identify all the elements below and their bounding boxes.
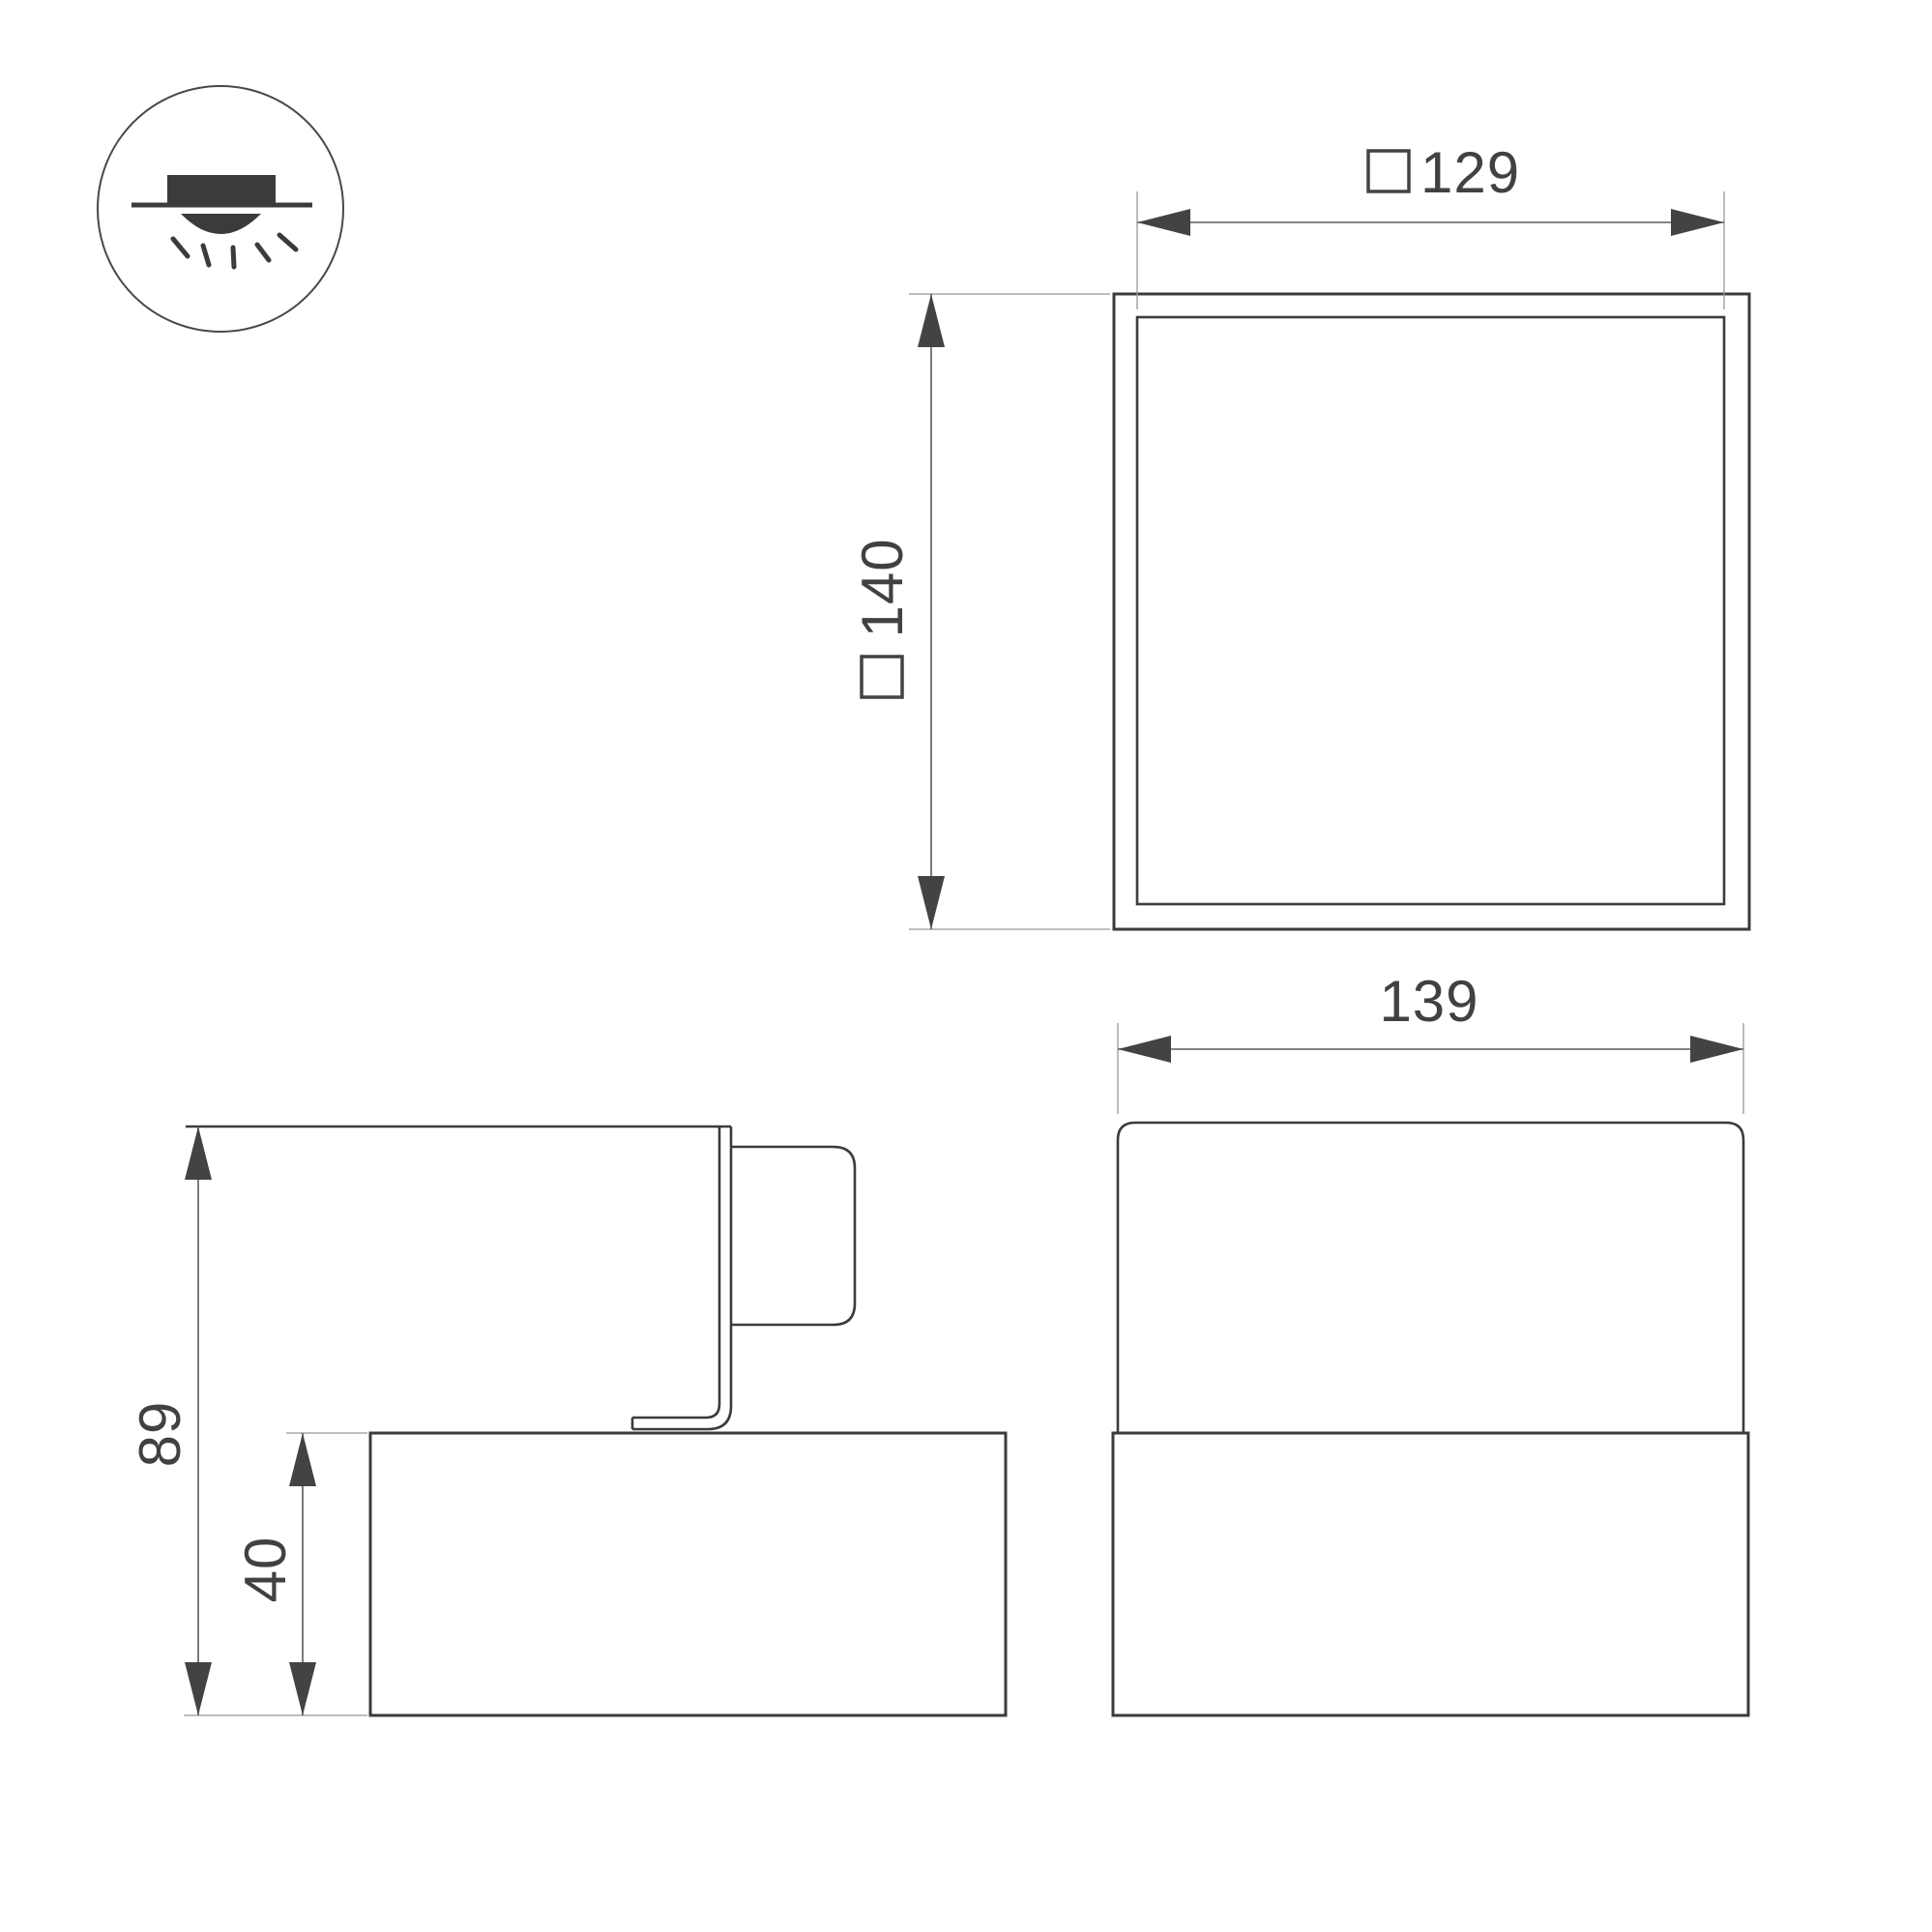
dim-129-label: 129 [1420, 140, 1520, 205]
dimension-40: 40 [233, 1433, 367, 1715]
dimension-89: 89 [128, 1127, 367, 1715]
arrow-right-icon [1690, 1036, 1743, 1063]
base-box-side [370, 1433, 1006, 1715]
side-view: 89 40 [128, 1127, 1006, 1715]
technical-drawing-page: 129 140 [0, 0, 1932, 1932]
dimension-139: 139 [1118, 969, 1743, 1114]
dimension-drawing: 129 140 [0, 0, 1932, 1932]
icon-circle [98, 86, 343, 332]
arrow-up-icon [918, 294, 945, 347]
dimension-140: 140 [850, 294, 1110, 929]
dim-140-label: 140 [850, 538, 915, 637]
ceiling-surface-mount-icon [98, 86, 343, 332]
arrow-left-icon [1118, 1036, 1171, 1063]
light-rays-icon [173, 235, 296, 267]
front-view: 139 [1113, 969, 1748, 1715]
arrow-up-icon [289, 1433, 316, 1486]
arrow-down-icon [289, 1662, 316, 1715]
dimension-129: 129 [1137, 140, 1724, 309]
mounting-bracket [632, 1127, 731, 1429]
dim-89-label: 89 [128, 1401, 192, 1468]
square-symbol [862, 657, 902, 697]
arrow-right-icon [1671, 209, 1724, 236]
arrow-up-icon [185, 1127, 212, 1180]
arrow-down-icon [185, 1662, 212, 1715]
panel-outline [1137, 317, 1724, 904]
base-box-front [1113, 1433, 1748, 1715]
square-symbol [1368, 151, 1409, 191]
fixture-body [167, 175, 276, 205]
housing-outline [1114, 294, 1749, 929]
light-dome [181, 214, 261, 234]
head-outline [1118, 1123, 1743, 1433]
top-view: 129 140 [850, 140, 1749, 929]
dim-139-label: 139 [1379, 969, 1478, 1034]
arrow-down-icon [918, 876, 945, 929]
arrow-left-icon [1137, 209, 1190, 236]
connector-block [731, 1147, 855, 1325]
dim-40-label: 40 [233, 1537, 298, 1603]
